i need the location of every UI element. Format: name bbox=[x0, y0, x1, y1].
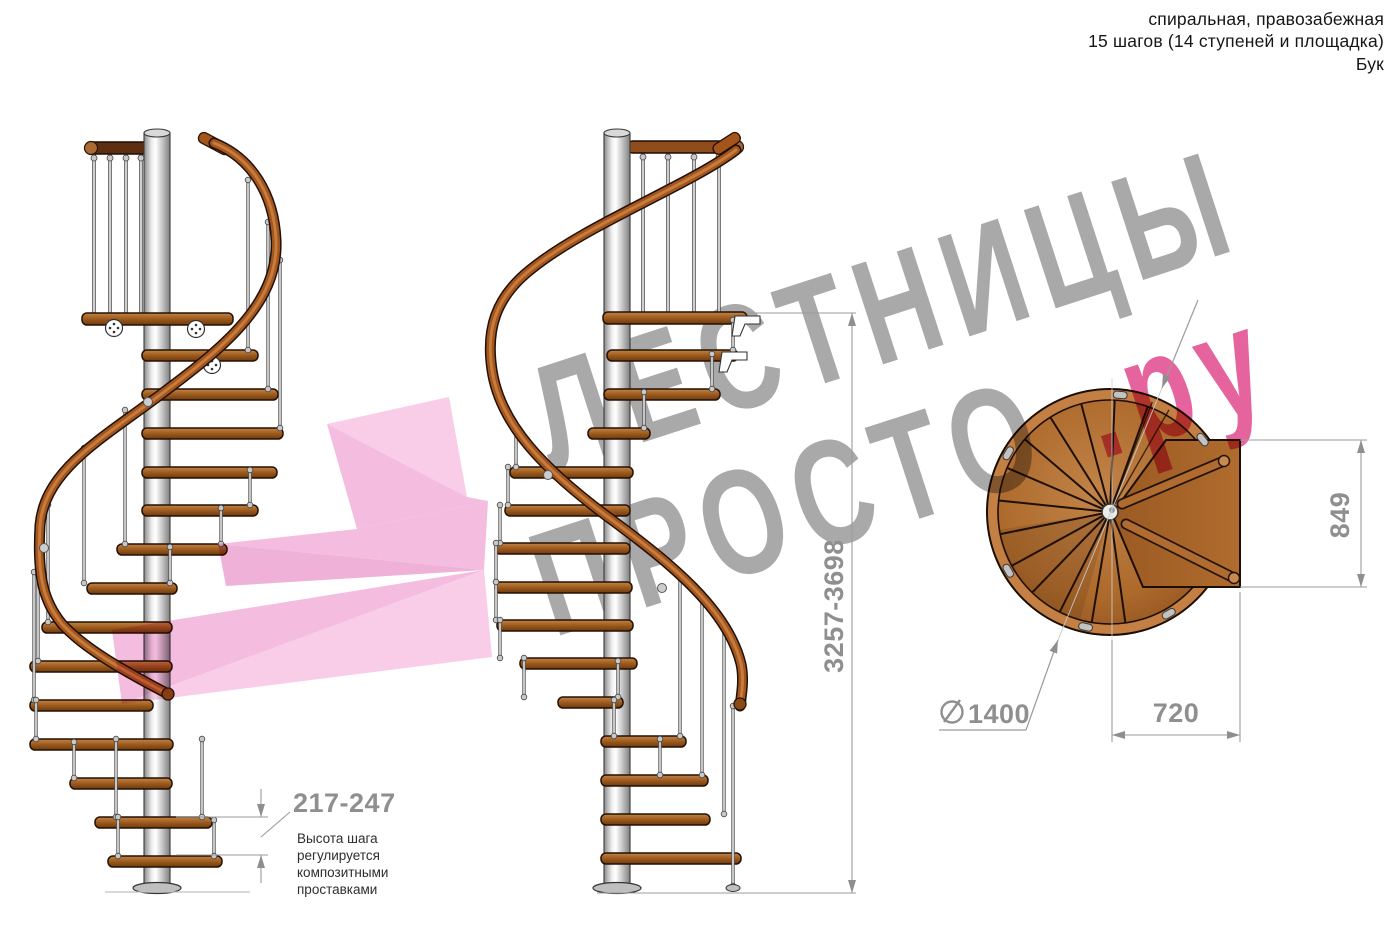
diameter-icon bbox=[942, 700, 963, 723]
total-height-label: 3257-3698 bbox=[819, 539, 849, 673]
staircase-drawing: ЛЕСТНИЦЫ ПРОСТО .ру 3257-3698 217-247 84… bbox=[0, 0, 1400, 943]
step-height-note: Высота шага регулируется композитными пр… bbox=[297, 830, 433, 898]
title-block: спиральная, правозабежная 15 шагов (14 с… bbox=[1088, 8, 1384, 75]
diameter-label: 1400 bbox=[968, 699, 1030, 729]
step-height-label: 217-247 bbox=[293, 788, 396, 818]
title-steps: 15 шагов (14 ступеней и площадка) bbox=[1088, 30, 1384, 52]
title-type: спиральная, правозабежная bbox=[1088, 8, 1384, 30]
platform-width-label: 720 bbox=[1153, 698, 1200, 728]
left-elevation bbox=[30, 129, 283, 894]
platform-depth-label: 849 bbox=[1325, 492, 1355, 539]
title-material: Бук bbox=[1088, 53, 1384, 75]
drawing-canvas: ЛЕСТНИЦЫ ПРОСТО .ру 3257-3698 217-247 84… bbox=[0, 0, 1400, 943]
